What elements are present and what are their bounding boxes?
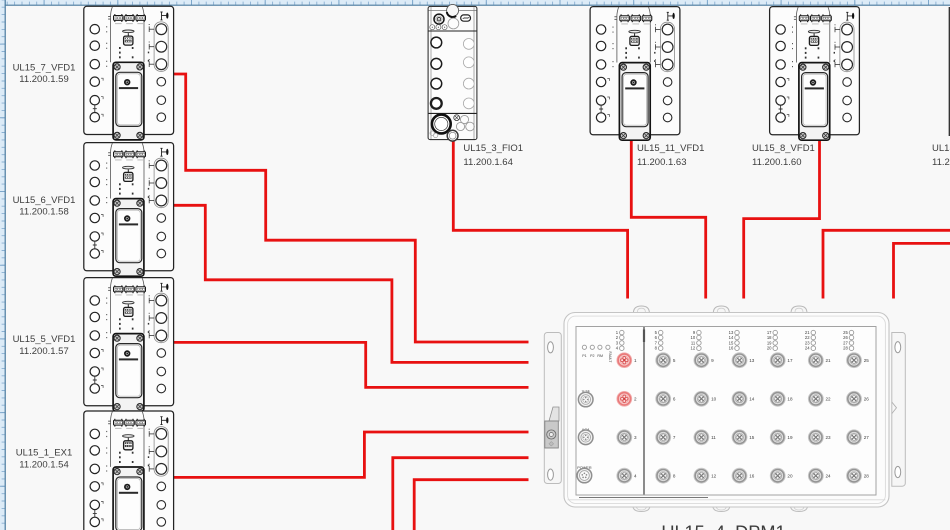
svg-text:10: 10 (691, 335, 696, 340)
svg-text:19: 19 (767, 340, 772, 345)
svg-text:15: 15 (729, 340, 734, 345)
svg-text:19: 19 (787, 435, 793, 440)
svg-text:21: 21 (826, 358, 832, 363)
svg-text:6: 6 (673, 397, 676, 402)
svg-text:15: 15 (749, 435, 755, 440)
svg-text:23: 23 (826, 435, 832, 440)
svg-text:24: 24 (805, 346, 810, 351)
svg-text:5: 5 (673, 358, 676, 363)
svg-text:FAULT: FAULT (608, 352, 612, 364)
svg-text:14: 14 (749, 397, 755, 402)
svg-text:11.200.1.59: 11.200.1.59 (19, 74, 68, 85)
svg-text:9: 9 (711, 358, 714, 363)
svg-text:UL15_5_VFD1: UL15_5_VFD1 (13, 334, 76, 345)
svg-text:16: 16 (729, 346, 734, 351)
svg-text:26: 26 (843, 335, 848, 340)
svg-text:RM: RM (597, 354, 603, 358)
svg-text:11.200.1.58: 11.200.1.58 (19, 206, 68, 217)
svg-text:22: 22 (826, 397, 832, 402)
svg-text:18: 18 (767, 335, 772, 340)
svg-text:18: 18 (787, 397, 793, 402)
svg-text:23: 23 (805, 340, 810, 345)
svg-text:11: 11 (711, 435, 716, 440)
svg-text:27: 27 (843, 340, 848, 345)
svg-text:UL15_6_VFD1: UL15_6_VFD1 (13, 195, 76, 206)
svg-text:17: 17 (787, 358, 793, 363)
svg-text:16: 16 (749, 473, 755, 478)
svg-text:20: 20 (767, 346, 772, 351)
svg-text:10: 10 (711, 397, 717, 402)
svg-text:4: 4 (634, 473, 637, 478)
svg-text:P2: P2 (590, 354, 594, 358)
svg-text:11.200.1.57: 11.200.1.57 (19, 346, 68, 357)
svg-text:12: 12 (691, 346, 696, 351)
svg-text:14: 14 (729, 335, 734, 340)
svg-text:P1: P1 (582, 354, 586, 358)
svg-text:11: 11 (691, 340, 696, 345)
svg-text:20: 20 (787, 473, 793, 478)
svg-text:12: 12 (711, 473, 717, 478)
svg-text:11.200.1.64: 11.200.1.64 (463, 157, 512, 168)
svg-text:2: 2 (634, 397, 637, 402)
svg-text:24: 24 (826, 473, 832, 478)
svg-text:UL15_7_VFD1: UL15_7_VFD1 (13, 62, 76, 73)
svg-text:UL15_1_EX1: UL15_1_EX1 (16, 448, 73, 459)
svg-text:13: 13 (749, 358, 755, 363)
svg-text:1: 1 (634, 358, 637, 363)
svg-text:UL15_8_VFD1: UL15_8_VFD1 (752, 143, 815, 154)
svg-text:11.200.1.60: 11.200.1.60 (752, 157, 801, 168)
svg-text:27: 27 (864, 435, 870, 440)
svg-text:UL15_4_DPM1: UL15_4_DPM1 (661, 523, 785, 530)
svg-text:11.2: 11.2 (932, 157, 950, 168)
svg-text:UL15_11_VFD1: UL15_11_VFD1 (637, 143, 704, 154)
svg-text:3: 3 (634, 435, 637, 440)
svg-text:11.200.1.54: 11.200.1.54 (19, 459, 68, 470)
svg-text:UL15_3_FIO1: UL15_3_FIO1 (463, 143, 523, 154)
svg-text:28: 28 (864, 473, 870, 478)
svg-text:25: 25 (864, 358, 870, 363)
svg-text:UL15: UL15 (932, 143, 950, 154)
svg-text:8: 8 (673, 473, 676, 478)
svg-text:22: 22 (805, 335, 810, 340)
svg-text:28: 28 (843, 346, 848, 351)
svg-text:26: 26 (864, 397, 870, 402)
svg-text:11.200.1.63: 11.200.1.63 (637, 157, 686, 168)
svg-text:7: 7 (673, 435, 676, 440)
